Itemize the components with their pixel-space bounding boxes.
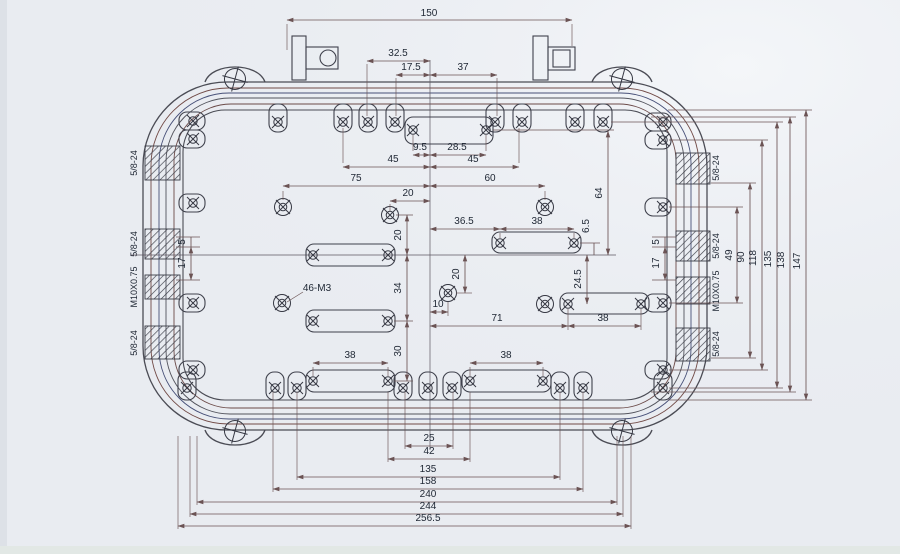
dim-t10: 10 [432, 299, 444, 310]
dim-t17-5: 17.5 [401, 62, 421, 73]
screw-icon [516, 116, 528, 128]
screw-icon [407, 124, 419, 136]
screw-icon [464, 375, 476, 387]
dim-t71: 71 [491, 313, 503, 324]
scan-edge-bottom [0, 546, 900, 554]
dim-t9-5: 9.5 [413, 142, 427, 153]
screw-icon [562, 298, 574, 310]
dim-t150: 150 [421, 8, 438, 19]
dim-t147: 147 [792, 252, 803, 269]
screw-icon [382, 315, 394, 327]
thread-insert-hatch [676, 277, 710, 304]
dim-t49: 49 [724, 249, 735, 261]
dim-t38b: 38 [597, 313, 609, 324]
dim-t135: 135 [420, 464, 437, 475]
screw-icon [389, 116, 401, 128]
screw-icon [187, 197, 199, 209]
thread-insert-hatch [145, 229, 180, 259]
dim-t17r: 17 [651, 257, 662, 269]
screw-icon [362, 116, 374, 128]
scan-edge-left [0, 0, 7, 554]
screw-icon [269, 382, 281, 394]
dim-t34: 34 [393, 282, 404, 294]
dim-t135r: 135 [763, 250, 774, 267]
screw-icon [382, 249, 394, 261]
dim-t25: 25 [423, 433, 435, 444]
dim-t158: 158 [420, 476, 437, 487]
dim-t38d: 38 [500, 350, 512, 361]
screw-icon [382, 375, 394, 387]
screw-icon [569, 116, 581, 128]
dim-t60: 60 [484, 173, 496, 184]
dim-t37: 37 [457, 62, 469, 73]
dim-t42: 42 [423, 446, 435, 457]
thread-label-left-4: 5/8-24 [129, 330, 139, 356]
screw-icon [307, 249, 319, 261]
drawing-canvas: 5/8-24 5/8-24 M10X0.75 5/8-24 5/8-24 5/8… [0, 0, 900, 554]
dim-t118: 118 [748, 250, 759, 266]
dim-t75: 75 [350, 173, 362, 184]
thread-insert-hatch [145, 275, 180, 299]
screw-icon [568, 237, 580, 249]
screw-icon [181, 382, 193, 394]
dim-t138: 138 [776, 251, 787, 268]
dim-t28-5: 28.5 [447, 142, 467, 153]
screw-icon [480, 124, 492, 136]
screw-icon [187, 364, 199, 376]
screw-icon [489, 116, 501, 128]
thread-insert-hatch [676, 231, 710, 261]
dim-t32-5: 32.5 [388, 48, 408, 59]
screw-icon [337, 116, 349, 128]
screw-icon [187, 133, 199, 145]
thread-insert-hatch [145, 326, 180, 359]
dim-t30: 30 [393, 345, 404, 357]
dim-t20c: 20 [451, 268, 462, 280]
dim-t45l: 45 [387, 154, 399, 165]
dim-t36-5: 36.5 [454, 216, 474, 227]
thread-label-right-1: 5/8-24 [711, 155, 721, 181]
dim-t240: 240 [420, 489, 437, 500]
dim-t64: 64 [594, 187, 605, 199]
dim-t45r: 45 [467, 154, 479, 165]
dim-t20a: 20 [402, 188, 414, 199]
dim-t256-5: 256.5 [415, 513, 440, 524]
screw-icon [494, 237, 506, 249]
dim-t20b: 20 [393, 229, 404, 241]
dim-t6-5: 6.5 [581, 219, 592, 233]
thread-label-right-3: M10X0.75 [711, 270, 721, 311]
thread-label-right-2: 5/8-24 [711, 233, 721, 259]
screw-icon [187, 115, 199, 127]
screw-icon [657, 134, 669, 146]
dim-t5l: 5 [177, 239, 188, 245]
thread-label-left-3: M10X0.75 [129, 266, 139, 307]
screw-icon [635, 298, 647, 310]
screw-icon [422, 382, 434, 394]
dim-t38c: 38 [344, 350, 356, 361]
screw-icon [657, 297, 669, 309]
enclosure-machining-drawing: 5/8-24 5/8-24 M10X0.75 5/8-24 5/8-24 5/8… [0, 0, 900, 554]
dim-t5r: 5 [651, 239, 662, 245]
dim-46-m3: 46-M3 [303, 283, 332, 294]
thread-insert-hatch [676, 328, 710, 361]
screw-icon [657, 364, 669, 376]
screw-icon [187, 297, 199, 309]
screw-icon [597, 116, 609, 128]
screw-icon [307, 375, 319, 387]
screw-icon [537, 375, 549, 387]
dim-t38a: 38 [531, 216, 543, 227]
screw-icon [307, 315, 319, 327]
thread-label-right-4: 5/8-24 [711, 331, 721, 357]
dim-t24-5: 24.5 [573, 269, 584, 289]
thread-insert-hatch [145, 146, 180, 180]
screw-icon [446, 382, 458, 394]
thread-label-left-2: 5/8-24 [129, 231, 139, 257]
dim-t90: 90 [736, 251, 747, 263]
screw-icon [272, 116, 284, 128]
screw-icon [657, 201, 669, 213]
screw-icon [397, 382, 409, 394]
thread-insert-hatch [676, 153, 710, 184]
dim-t244: 244 [420, 501, 437, 512]
dim-t17l: 17 [177, 257, 188, 269]
thread-label-left-1: 5/8-24 [129, 150, 139, 176]
